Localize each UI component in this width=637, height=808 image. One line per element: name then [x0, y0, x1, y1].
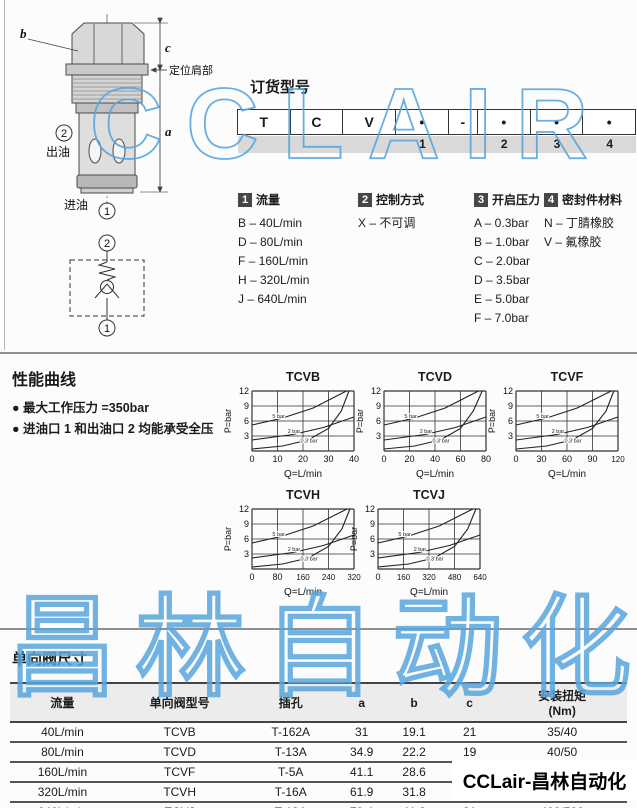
x-axis-label: Q=L/min: [284, 469, 322, 479]
y-axis-label: P=bar: [223, 527, 233, 551]
y-tick-label: 12: [239, 504, 249, 514]
model-code-index: [449, 136, 478, 153]
x-tick-label: 0: [375, 572, 380, 582]
y-tick-label: 3: [508, 431, 513, 441]
model-code-cell: T: [237, 109, 291, 135]
x-tick-label: 160: [296, 573, 310, 582]
chart-plot: 369120306090120P=barQ=L/min5 bar2 bar0.3…: [486, 385, 626, 479]
dims-cell: 79.4: [337, 802, 386, 808]
performance-chart-TCVD: TCVD36912020406080P=barQ=L/min5 bar2 bar…: [354, 370, 494, 484]
port-hole: [113, 139, 125, 163]
table-row: 80L/minTCVDT-13A34.922.21940/50: [10, 742, 627, 762]
dims-cell: TCVF: [115, 762, 245, 782]
y-axis-label: P=bar: [223, 409, 233, 433]
curve-label: 5 bar: [404, 414, 417, 420]
curve-2-bar: [252, 417, 354, 440]
locating-shoulder: [66, 64, 148, 75]
x-axis-label: Q=L/min: [548, 469, 586, 479]
hydraulic-symbol: 2 1: [70, 235, 144, 336]
x-tick-label: 120: [611, 455, 625, 464]
dims-cell: TCVJ: [115, 802, 245, 808]
model-code-index: 1: [396, 136, 449, 153]
dims-cell: 31: [337, 722, 386, 742]
dims-cell: 21: [442, 722, 498, 742]
curve-2-bar: [384, 417, 486, 440]
dims-col-header: b: [386, 683, 442, 722]
dims-cell: 19.1: [386, 722, 442, 742]
dims-cell: 31: [442, 802, 498, 808]
curve-label: 2 bar: [288, 547, 301, 553]
y-tick-label: 3: [370, 549, 375, 559]
y-tick-label: 12: [239, 386, 249, 396]
y-tick-label: 6: [508, 416, 513, 426]
valve-body: [79, 113, 135, 175]
curve-0.3-bar: [252, 391, 349, 449]
model-code-index: [343, 136, 396, 153]
x-tick-label: 20: [298, 454, 308, 464]
dims-cell: TCVD: [115, 742, 245, 762]
model-code-index: [291, 136, 344, 153]
model-code-cell: V: [342, 109, 396, 135]
scan-edge-line: [4, 0, 5, 350]
ordering-option: F – 160L/min: [238, 252, 309, 271]
table-row: 640L/minTCVJT-18A79.441.331400/500: [10, 802, 627, 808]
model-code-index: 3: [531, 136, 584, 153]
curve-label: 0.3 bar: [432, 439, 449, 445]
dims-cell: 40/50: [497, 742, 627, 762]
x-tick-label: 240: [322, 573, 336, 582]
performance-title: 性能曲线: [12, 366, 76, 390]
performance-note: ● 最大工作压力 =350bar: [12, 398, 213, 419]
dims-cell: 22.2: [386, 742, 442, 762]
group-number-badge: 1: [238, 193, 252, 207]
dims-col-header: 单向阀型号: [115, 683, 245, 722]
ordering-option: H – 320L/min: [238, 271, 309, 290]
x-axis-label: Q=L/min: [410, 587, 448, 597]
ordering-group-2: 2控制方式X – 不可调: [358, 191, 424, 233]
dims-cell: 31.8: [386, 782, 442, 802]
dims-cell: T-16A: [244, 782, 337, 802]
shoulder-label: 定位肩部: [169, 63, 213, 77]
group-title: 密封件材料: [562, 191, 622, 208]
datasheet-page: b c 定位肩部 a 2 出油 进油 1 2: [0, 0, 637, 808]
x-tick-label: 320: [347, 573, 361, 582]
inlet-label: 进油: [64, 198, 88, 212]
ordering-option: E – 5.0bar: [474, 290, 540, 309]
dims-cell: T-162A: [244, 722, 337, 742]
model-code-index: 4: [583, 136, 636, 153]
ordering-title: 订货型号: [250, 76, 636, 97]
dims-cell: TCVH: [115, 782, 245, 802]
x-tick-label: 480: [448, 573, 462, 582]
curve-5-bar: [252, 509, 347, 543]
x-tick-label: 0: [249, 572, 254, 582]
model-code-cell: •: [477, 109, 531, 135]
curve-label: 2 bar: [552, 429, 565, 435]
curve-label: 0.3 bar: [300, 439, 317, 445]
ordering-section: 订货型号 TCV•-••• 1234 1流量B – 40L/minD – 80L…: [238, 76, 636, 331]
y-tick-label: 9: [244, 401, 249, 411]
chart-plot: 36912080160240320P=barQ=L/min5 bar2 bar0…: [222, 503, 362, 597]
dims-cell: 19: [442, 742, 498, 762]
chart-title: TCVH: [222, 488, 362, 503]
chart-plot: 36912020406080P=barQ=L/min5 bar2 bar0.3 …: [354, 385, 494, 479]
group-number-badge: 2: [358, 193, 372, 207]
dims-cell: 320L/min: [10, 782, 115, 802]
y-axis-label: P=bar: [355, 409, 365, 433]
ordering-group-1: 1流量B – 40L/minD – 80L/minF – 160L/minH –…: [238, 191, 309, 309]
curve-label: 5 bar: [272, 414, 285, 420]
curve-5-bar: [384, 391, 478, 425]
dims-cell: T-18A: [244, 802, 337, 808]
model-code-cell: •: [395, 109, 449, 135]
model-code-index: [238, 136, 291, 153]
y-tick-label: 9: [508, 401, 513, 411]
ordering-option-groups: 1流量B – 40L/minD – 80L/minF – 160L/minH –…: [238, 191, 636, 331]
x-tick-label: 320: [422, 573, 436, 582]
symbol-port-2: 2: [104, 238, 110, 250]
dims-col-header: 流量: [10, 683, 115, 722]
y-tick-label: 9: [244, 519, 249, 529]
ordering-group-header: 2控制方式: [358, 191, 424, 208]
dimensions-title: 单向阀尺寸: [12, 648, 87, 669]
dims-cell: T-13A: [244, 742, 337, 762]
table-row: 40L/minTCVBT-162A3119.12135/40: [10, 722, 627, 742]
ordering-group-4: 4密封件材料N – 丁腈橡胶V – 氟橡胶: [544, 191, 622, 252]
x-tick-label: 40: [430, 454, 440, 464]
check-ball-symbol: [101, 281, 114, 294]
performance-chart-TCVB: TCVB36912010203040P=barQ=L/min5 bar2 bar…: [222, 370, 362, 484]
curve-0.3-bar: [384, 391, 482, 449]
x-tick-label: 60: [455, 454, 465, 464]
curve-5-bar: [252, 391, 346, 425]
ordering-option: D – 80L/min: [238, 233, 309, 252]
curve-label: 0.3 bar: [300, 557, 317, 563]
y-tick-label: 12: [503, 386, 513, 396]
curve-label: 0.3 bar: [426, 557, 443, 563]
dims-cell: 61.9: [337, 782, 386, 802]
curve-0.3-bar: [252, 509, 350, 567]
y-tick-label: 6: [244, 534, 249, 544]
y-axis-label: P=bar: [487, 409, 497, 433]
dims-cell: 80L/min: [10, 742, 115, 762]
performance-chart-TCVJ: TCVJ369120160320480640P=barQ=L/min5 bar2…: [348, 488, 488, 602]
curve-label: 2 bar: [420, 429, 433, 435]
performance-notes: ● 最大工作压力 =350bar● 进油口 1 和出油口 2 均能承受全压: [12, 398, 213, 440]
x-tick-label: 90: [587, 454, 597, 464]
brand-label: CCLair-昌林自动化: [452, 760, 637, 800]
curve-2-bar: [378, 535, 480, 558]
curve-2-bar: [252, 535, 354, 558]
outlet-label: 出油: [46, 145, 70, 159]
y-tick-label: 6: [244, 416, 249, 426]
dims-cell: 41.1: [337, 762, 386, 782]
dims-cell: 35/40: [497, 722, 627, 742]
ordering-option: C – 2.0bar: [474, 252, 540, 271]
model-code-cell: -: [448, 109, 478, 135]
model-code-cell: •: [530, 109, 584, 135]
x-tick-label: 80: [272, 572, 282, 582]
ordering-option: D – 3.5bar: [474, 271, 540, 290]
model-code-cell: •: [582, 109, 636, 135]
hex-cap: [72, 23, 144, 64]
y-tick-label: 6: [376, 416, 381, 426]
ordering-group-header: 1流量: [238, 191, 309, 208]
port-hole: [89, 139, 101, 163]
curve-label: 2 bar: [414, 547, 427, 553]
curve-2-bar: [516, 417, 618, 440]
group-title: 控制方式: [376, 191, 424, 208]
performance-note: ● 进油口 1 和出油口 2 均能承受全压: [12, 419, 213, 440]
dims-col-header: 插孔: [244, 683, 337, 722]
x-tick-label: 0: [381, 454, 386, 464]
y-tick-label: 12: [371, 386, 381, 396]
group-number-badge: 4: [544, 193, 558, 207]
curve-label: 5 bar: [398, 532, 411, 538]
dims-col-header: a: [337, 683, 386, 722]
curve-label: 2 bar: [288, 429, 301, 435]
curve-label: 0.3 bar: [564, 439, 581, 445]
y-tick-label: 3: [376, 431, 381, 441]
section-divider: [0, 628, 637, 630]
ordering-option: J – 640L/min: [238, 290, 309, 309]
dims-cell: 41.3: [386, 802, 442, 808]
y-tick-label: 6: [370, 534, 375, 544]
x-tick-label: 30: [323, 454, 333, 464]
ordering-option: F – 7.0bar: [474, 309, 540, 328]
ordering-option: B – 1.0bar: [474, 233, 540, 252]
ordering-group-header: 4密封件材料: [544, 191, 622, 208]
group-title: 开启压力: [492, 191, 540, 208]
curve-5-bar: [516, 391, 611, 425]
y-tick-label: 3: [244, 549, 249, 559]
ordering-option: N – 丁腈橡胶: [544, 214, 622, 233]
chart-title: TCVF: [486, 370, 626, 385]
chart-title: TCVJ: [348, 488, 488, 503]
group-title: 流量: [256, 191, 280, 208]
ordering-option: V – 氟橡胶: [544, 233, 622, 252]
x-tick-label: 10: [272, 454, 282, 464]
x-tick-label: 160: [397, 573, 411, 582]
x-tick-label: 640: [473, 573, 487, 582]
x-tick-label: 0: [513, 454, 518, 464]
dims-cell: 160L/min: [10, 762, 115, 782]
dims-col-header: c: [442, 683, 498, 722]
x-tick-label: 80: [481, 454, 491, 464]
model-code-index: 2: [478, 136, 531, 153]
chart-plot: 369120160320480640P=barQ=L/min5 bar2 bar…: [348, 503, 488, 597]
model-code-row: TCV•-•••: [238, 109, 636, 135]
chart-plot: 36912010203040P=barQ=L/min5 bar2 bar0.3 …: [222, 385, 362, 479]
ordering-group-header: 3开启压力: [474, 191, 540, 208]
model-code-index-row: 1234: [238, 136, 636, 153]
curve-label: 5 bar: [536, 414, 549, 420]
dims-cell: 400/500: [497, 802, 627, 808]
x-tick-label: 20: [404, 454, 414, 464]
section-divider: [0, 352, 637, 354]
y-tick-label: 12: [365, 504, 375, 514]
dims-cell: 34.9: [337, 742, 386, 762]
dims-cell: TCVB: [115, 722, 245, 742]
x-tick-label: 60: [562, 454, 572, 464]
dims-cell: 640L/min: [10, 802, 115, 808]
curve-5-bar: [378, 509, 473, 543]
dim-c-label: c: [165, 40, 171, 55]
y-tick-label: 3: [244, 431, 249, 441]
curve-0.3-bar: [378, 509, 476, 567]
x-axis-label: Q=L/min: [416, 469, 454, 479]
dims-cell: T-5A: [244, 762, 337, 782]
curve-label: 5 bar: [272, 532, 285, 538]
ordering-option: A – 0.3bar: [474, 214, 540, 233]
ordering-option: X – 不可调: [358, 214, 424, 233]
x-tick-label: 0: [249, 454, 254, 464]
y-axis-label: P=bar: [349, 527, 359, 551]
spring-symbol: [99, 262, 115, 280]
chart-title: TCVD: [354, 370, 494, 385]
y-tick-label: 9: [376, 401, 381, 411]
chart-title: TCVB: [222, 370, 362, 385]
x-axis-label: Q=L/min: [284, 587, 322, 597]
dims-col-header: 安装扭矩 (Nm): [497, 683, 627, 722]
x-tick-label: 30: [536, 454, 546, 464]
x-tick-label: 40: [349, 454, 359, 464]
performance-chart-TCVF: TCVF369120306090120P=barQ=L/min5 bar2 ba…: [486, 370, 626, 484]
symbol-port-1: 1: [104, 323, 110, 335]
model-code-cell: C: [290, 109, 344, 135]
ordering-group-3: 3开启压力A – 0.3barB – 1.0barC – 2.0barD – 3…: [474, 191, 540, 328]
y-tick-label: 9: [370, 519, 375, 529]
valve-drawing: b c 定位肩部 a 2 出油 进油 1 2: [6, 6, 234, 346]
dim-b-label: b: [20, 26, 27, 41]
curve-0.3-bar: [516, 391, 614, 449]
dim-a-label: a: [165, 124, 172, 139]
ordering-option: B – 40L/min: [238, 214, 309, 233]
group-number-badge: 3: [474, 193, 488, 207]
dims-cell: 28.6: [386, 762, 442, 782]
performance-chart-TCVH: TCVH36912080160240320P=barQ=L/min5 bar2 …: [222, 488, 362, 602]
dims-cell: 40L/min: [10, 722, 115, 742]
port-2-number: 2: [61, 128, 67, 140]
port-1-number: 1: [104, 206, 110, 218]
